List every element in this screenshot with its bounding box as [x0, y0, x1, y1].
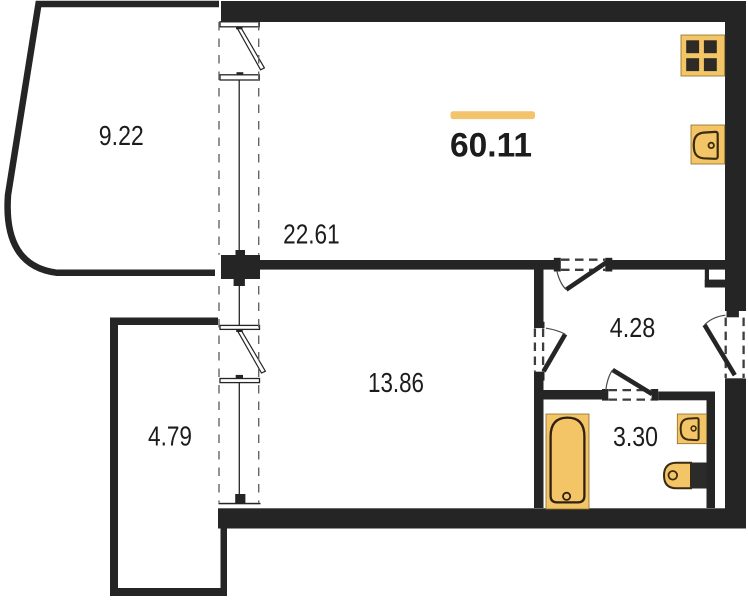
svg-text:4.28: 4.28 — [610, 312, 656, 343]
svg-text:60.11: 60.11 — [450, 126, 532, 164]
svg-text:9.22: 9.22 — [99, 120, 144, 151]
svg-text:13.86: 13.86 — [368, 367, 424, 398]
svg-text:22.61: 22.61 — [283, 218, 340, 249]
svg-text:4.79: 4.79 — [148, 421, 192, 452]
svg-text:3.30: 3.30 — [613, 421, 658, 452]
